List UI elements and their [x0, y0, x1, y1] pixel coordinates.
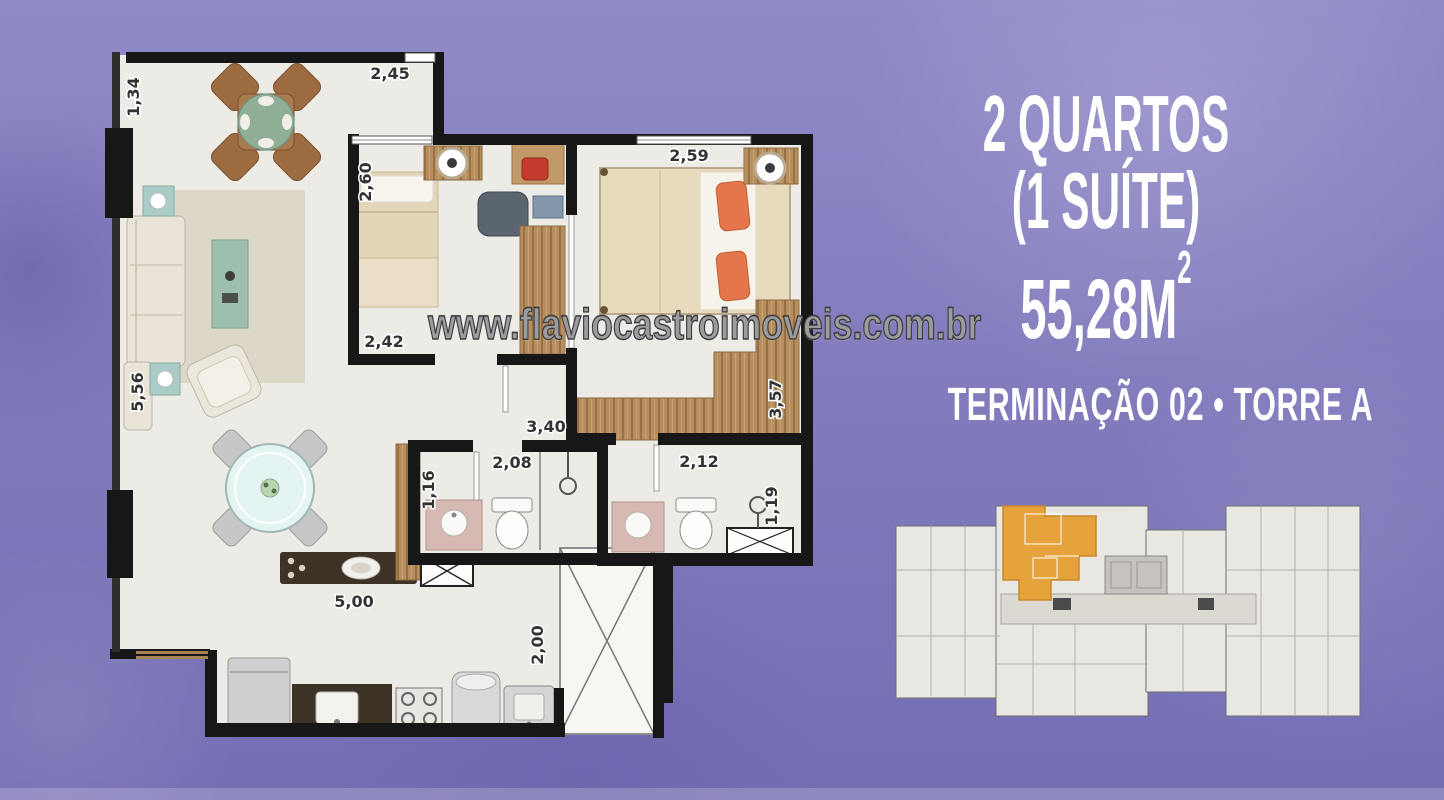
- title-line-1: 2 QUARTOS: [979, 84, 1233, 164]
- wall-segment: [554, 688, 564, 737]
- tv-console: [212, 240, 248, 328]
- dim-label: 1,19: [762, 486, 781, 525]
- area-superscript: 2: [1177, 244, 1191, 290]
- wall-segment: [658, 433, 813, 445]
- subtitle: TERMINAÇÃO 02 • TORRE A: [948, 381, 1265, 427]
- wall-segment: [801, 134, 813, 565]
- dim-label: 2,42: [364, 332, 403, 351]
- wall-segment: [348, 354, 435, 365]
- red-chair: [522, 158, 548, 180]
- flyer-stage: 1,34 2,45 2,60 2,59 2,42 3,57 5,56 3,40 …: [0, 0, 1444, 800]
- ceiling-fan: [744, 148, 798, 184]
- dim-label: 2,08: [492, 453, 531, 472]
- dim-label: 5,00: [334, 592, 373, 611]
- wall-segment: [126, 52, 444, 63]
- double-bed: [600, 168, 790, 314]
- wall-segment: [653, 553, 673, 703]
- wall-segment: [522, 440, 608, 452]
- wall-segment: [566, 348, 577, 445]
- dim-label: 1,16: [419, 470, 438, 509]
- building-floorplate: [893, 496, 1363, 728]
- wall-segment: [597, 553, 813, 566]
- watermark: www.flaviocastroimoveis.com.br: [428, 303, 981, 347]
- apartment-floorplan: 1,34 2,45 2,60 2,59 2,42 3,57 5,56 3,40 …: [100, 40, 890, 770]
- area-number: 55,28M: [1020, 262, 1177, 356]
- title-line-2: (1 SUÍTE): [979, 161, 1233, 241]
- dim-label: 2,59: [669, 146, 708, 165]
- wall-segment: [433, 134, 813, 145]
- wall-segment: [205, 723, 565, 737]
- area-value: 55,28M2: [972, 267, 1241, 351]
- dim-label: 3,40: [526, 417, 565, 436]
- wall-segment: [597, 440, 608, 566]
- window-block: [107, 490, 133, 578]
- wall-segment: [497, 354, 575, 365]
- wall-segment: [566, 134, 577, 215]
- shower-box: [727, 528, 793, 555]
- dim-label: 2,00: [528, 625, 547, 664]
- bottom-light-strip: [0, 788, 1444, 800]
- dim-label: 2,60: [356, 162, 375, 201]
- info-panel: 2 QUARTOS (1 SUÍTE) 55,28M2 TERMINAÇÃO 0…: [866, 0, 1346, 480]
- side-table-lamp: [143, 186, 174, 216]
- side-table-lamp: [150, 363, 180, 395]
- elevator-shaft: [560, 548, 654, 734]
- ceiling-fan: [424, 146, 482, 180]
- dim-label: 2,45: [370, 64, 409, 83]
- wall-segment: [408, 553, 609, 565]
- pillow: [716, 181, 751, 232]
- window-block: [105, 128, 133, 218]
- water-heater: [452, 672, 500, 730]
- fridge: [228, 658, 290, 728]
- wall-segment: [433, 52, 444, 145]
- wall-segment: [205, 650, 217, 737]
- dim-label: 1,34: [124, 77, 143, 116]
- wall-segment: [653, 700, 664, 738]
- dim-label: 5,56: [128, 372, 147, 411]
- dim-label: 3,57: [766, 379, 785, 418]
- pillow: [716, 251, 751, 302]
- round-dining-table: [210, 427, 330, 549]
- laptop: [533, 196, 563, 218]
- dim-label: 2,12: [679, 452, 718, 471]
